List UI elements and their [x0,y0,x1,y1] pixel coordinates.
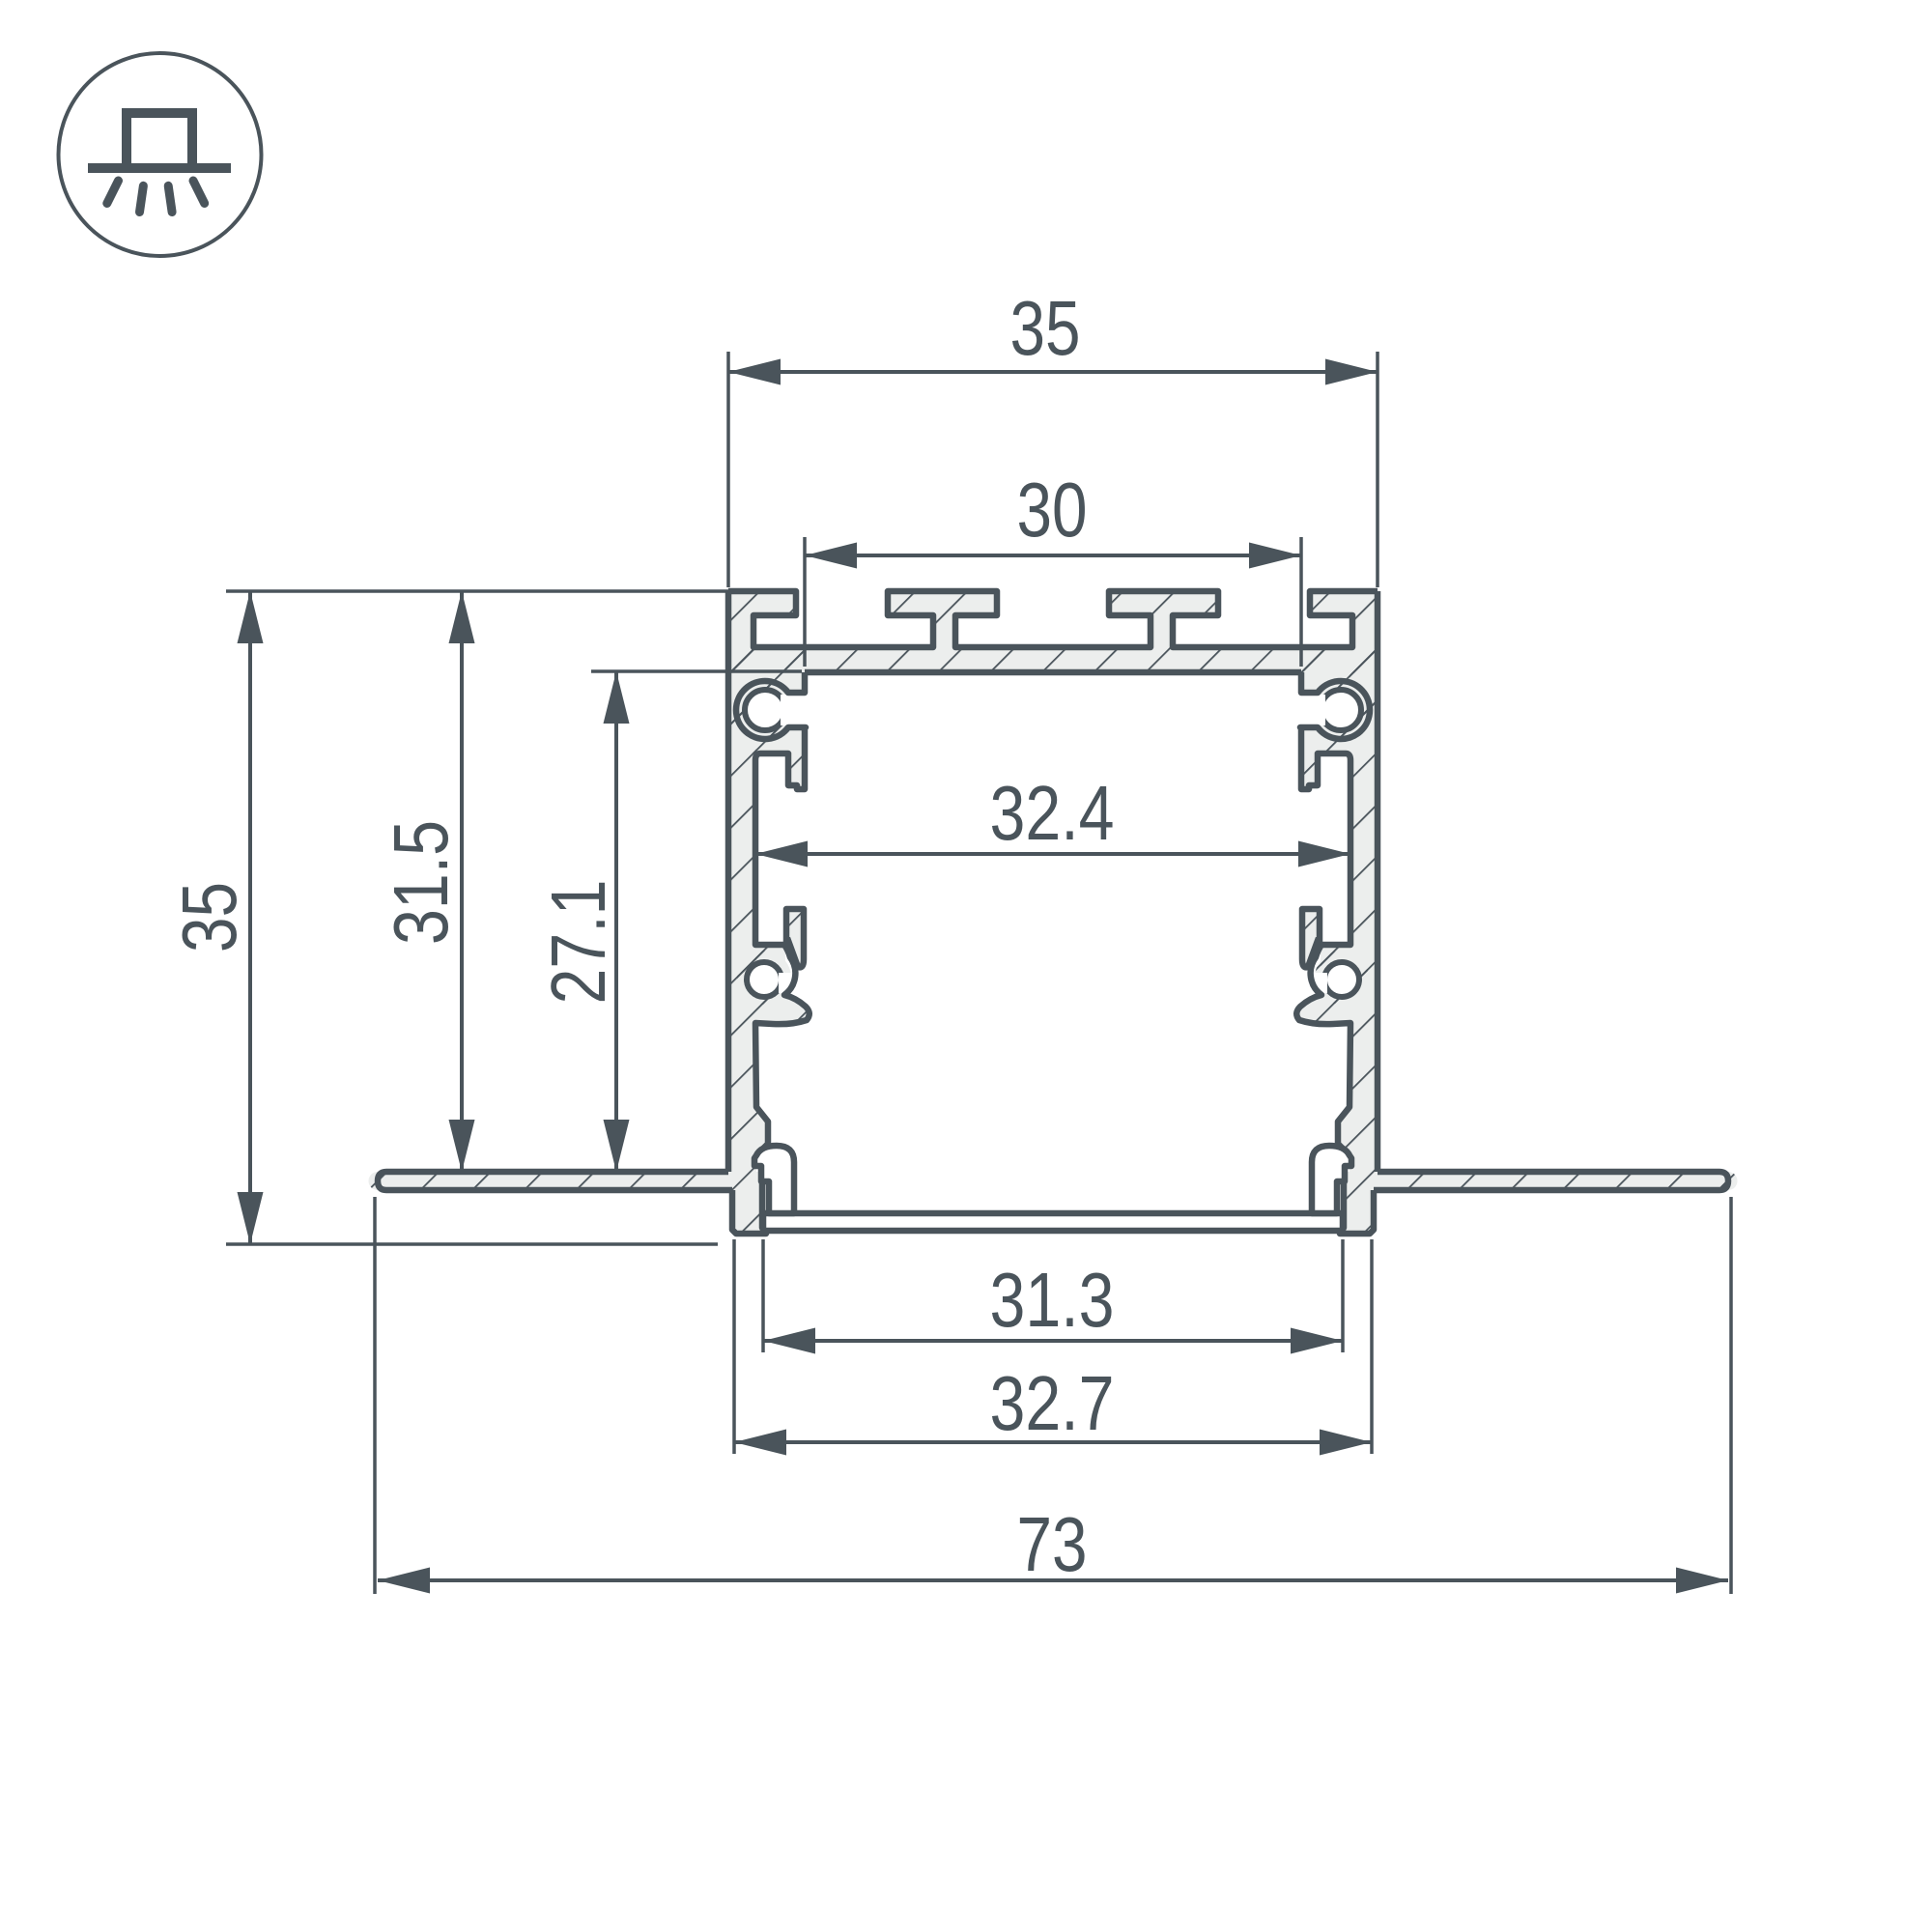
svg-text:32.7: 32.7 [990,1360,1115,1446]
svg-text:31.5: 31.5 [378,820,464,945]
svg-text:32.4: 32.4 [990,770,1115,856]
svg-text:73: 73 [1017,1501,1088,1587]
svg-text:35: 35 [166,882,252,952]
svg-text:35: 35 [1010,285,1081,371]
svg-text:30: 30 [1017,467,1088,553]
svg-text:27.1: 27.1 [535,880,621,1005]
svg-text:31.3: 31.3 [990,1257,1115,1343]
